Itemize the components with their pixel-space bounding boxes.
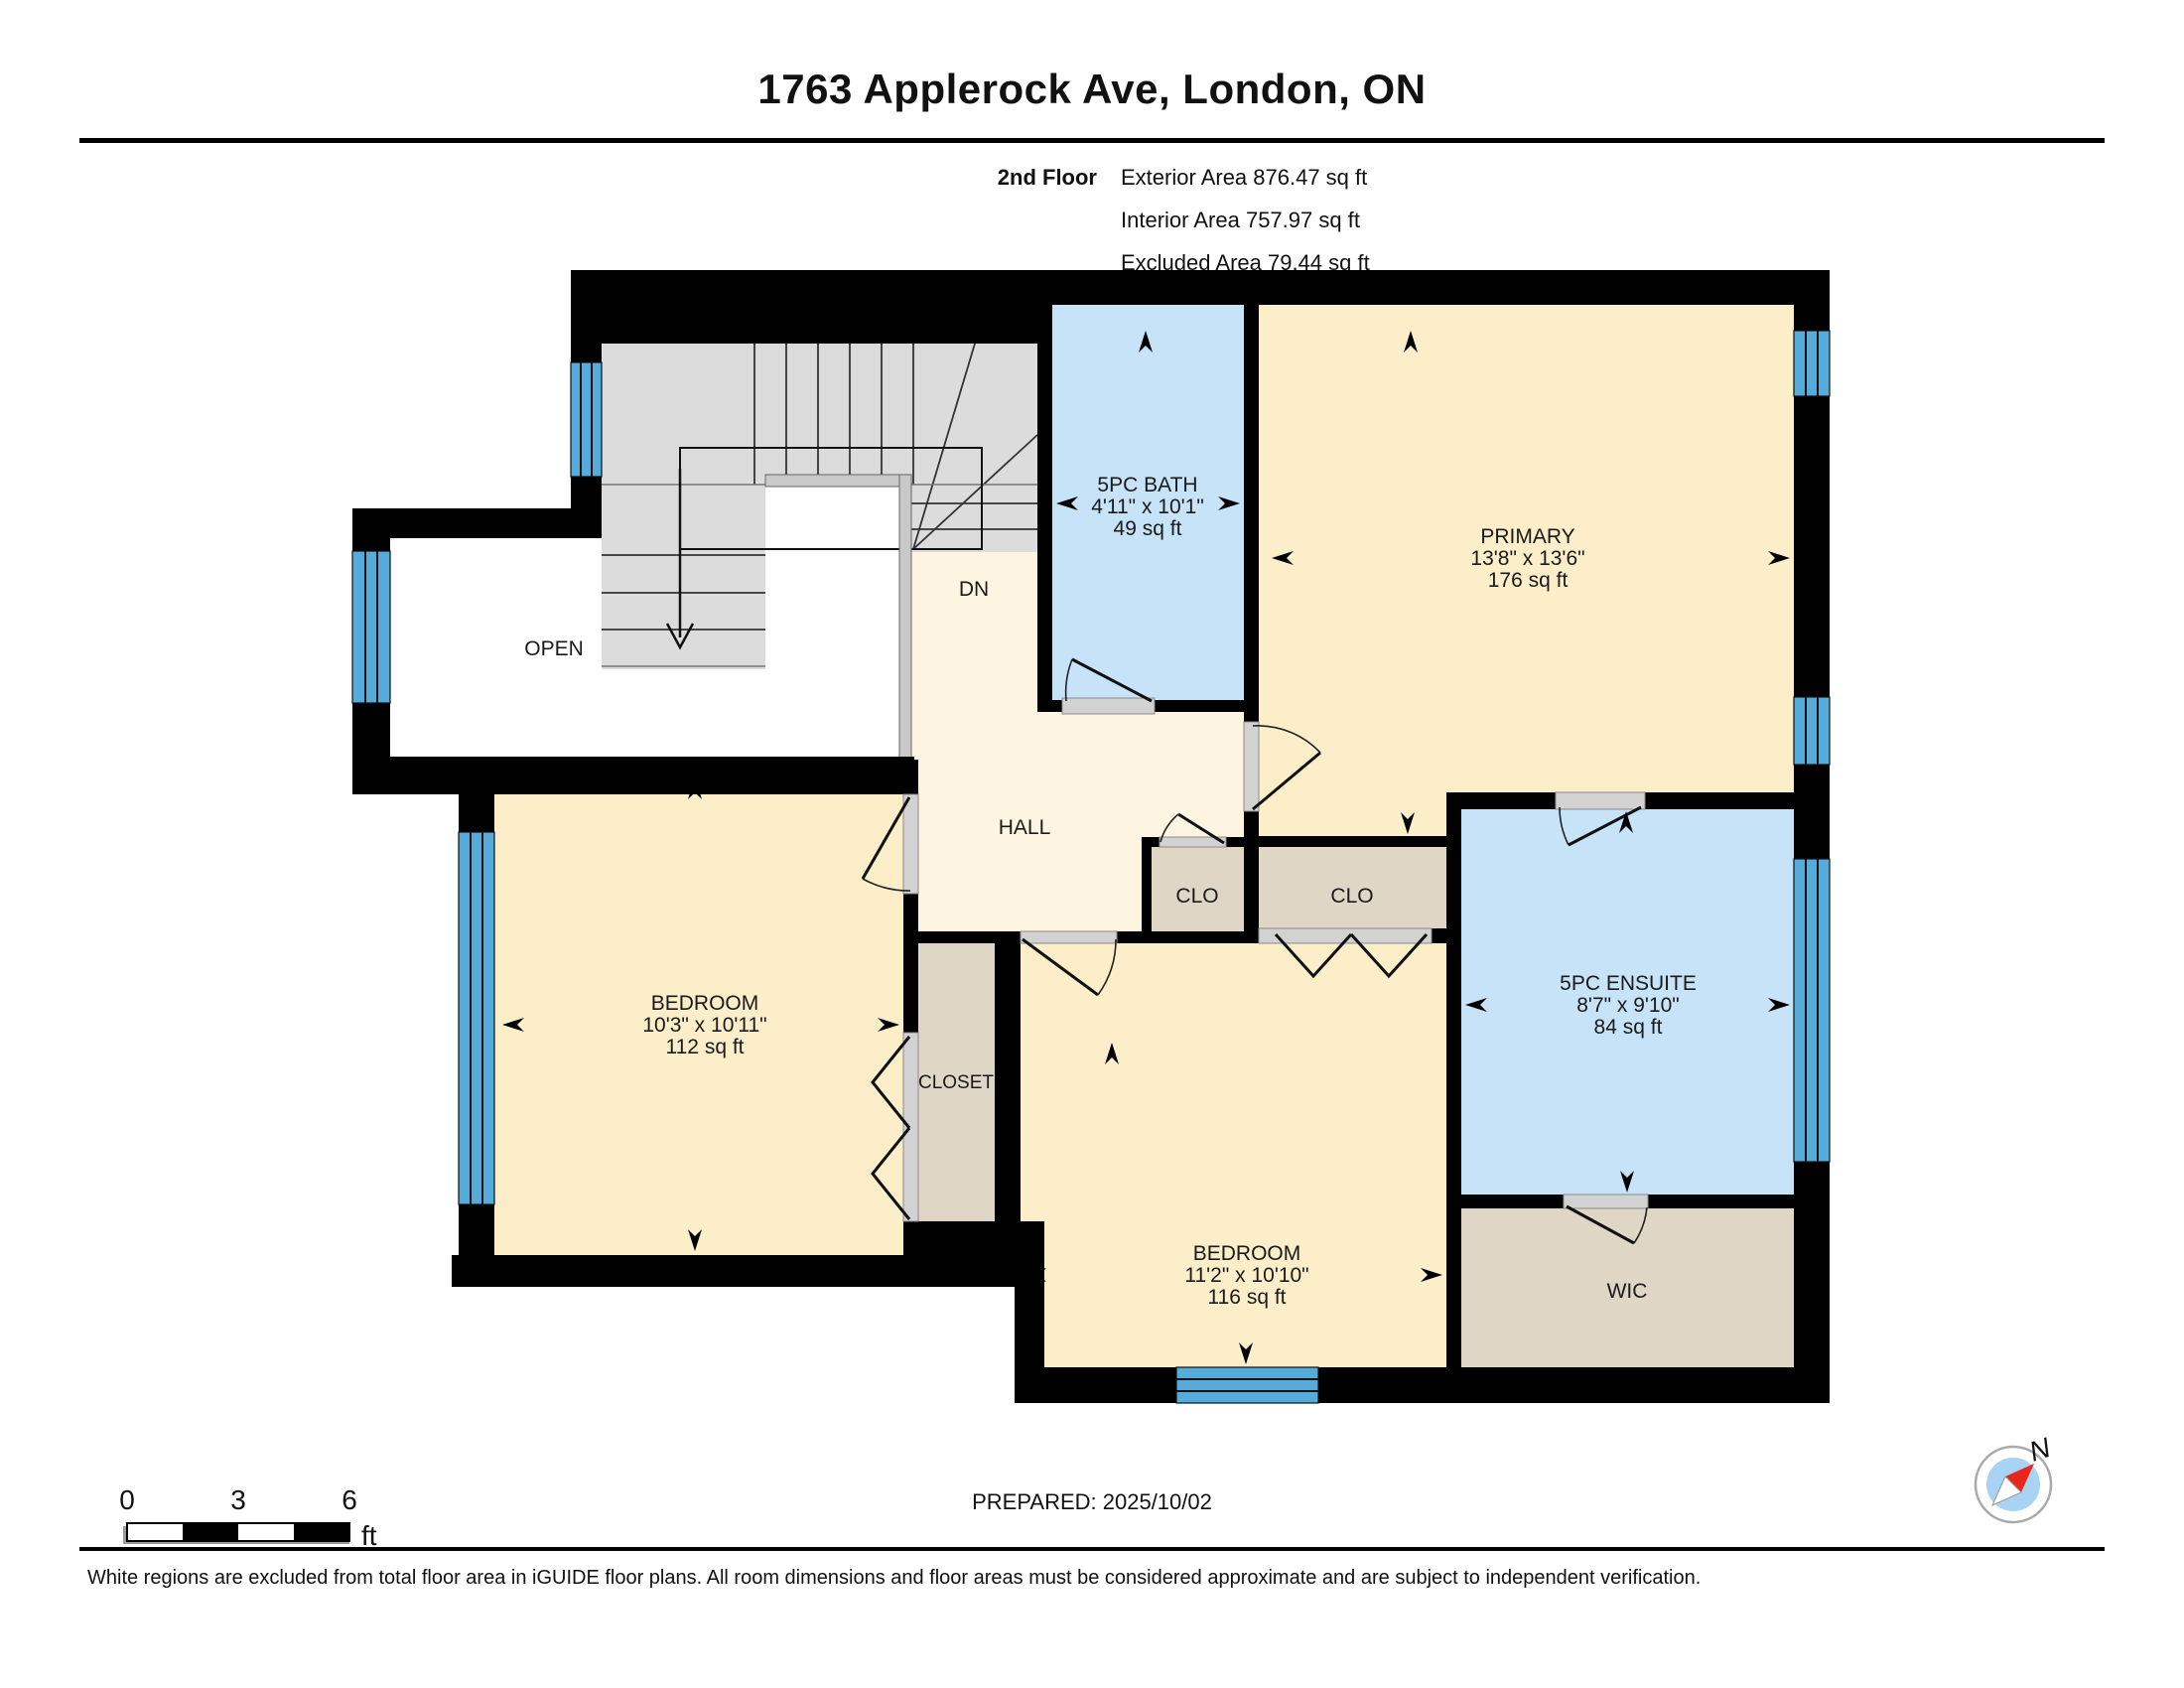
window-stairwell: [571, 362, 602, 477]
window-primary-1: [1794, 331, 1830, 396]
wall-segment: [1045, 270, 1830, 305]
wall-segment: [995, 943, 1021, 1221]
wall-segment: [1152, 837, 1160, 847]
clo1-label: CLO: [1175, 885, 1218, 908]
prepared-date: PREPARED: 2025/10/02: [0, 1489, 2184, 1515]
wall-segment: [903, 931, 1021, 943]
footer-rule: [79, 1547, 2105, 1551]
ensuite-label: 5PC ENSUITE: [1560, 972, 1697, 995]
bedroom1-dims: 10'3" x 10'11": [642, 1014, 766, 1037]
door-opening-bedroom1: [903, 794, 918, 894]
wall-segment: [1226, 837, 1244, 847]
door-opening-bedroom2: [1021, 931, 1117, 943]
door-opening-ensuite: [1556, 792, 1645, 809]
bath-dims: 4'11" x 10'1": [1091, 495, 1204, 518]
knee-wall: [899, 475, 911, 760]
bedroom1-area: 112 sq ft: [666, 1036, 745, 1058]
window-bedroom1: [459, 832, 494, 1204]
stairs-upper-floor: [602, 344, 1037, 485]
closet-label: CLOSET: [918, 1072, 994, 1093]
open-void-floor: [765, 487, 911, 546]
wall-segment: [1142, 837, 1152, 943]
window-ensuite: [1794, 859, 1830, 1162]
wall-segment: [903, 1221, 1044, 1287]
scale-bar-segment: [294, 1523, 349, 1541]
clo2-label: CLO: [1330, 885, 1373, 908]
wall-segment: [1037, 305, 1052, 712]
wall-segment: [1244, 837, 1259, 943]
window-open-area: [352, 551, 390, 703]
bedroom2-dims: 11'2" x 10'10": [1184, 1264, 1308, 1287]
scale-bar-segment: [183, 1523, 238, 1541]
disclaimer-text: White regions are excluded from total fl…: [87, 1567, 1701, 1590]
bath-label: 5PC BATH: [1097, 474, 1197, 496]
door-opening-bath: [1062, 698, 1155, 714]
stairs-dn-label: DN: [959, 578, 989, 601]
window-primary-2: [1794, 697, 1830, 765]
bedroom1-label: BEDROOM: [651, 992, 759, 1015]
hall-label: HALL: [999, 816, 1051, 839]
primary-area: 176 sq ft: [1488, 569, 1569, 592]
window-bedroom2: [1176, 1367, 1318, 1403]
wall-segment: [1794, 270, 1830, 1403]
wic-label: WIC: [1607, 1280, 1648, 1303]
bedroom2-label: BEDROOM: [1193, 1242, 1301, 1265]
door-opening-closet-bifold: [903, 1033, 918, 1221]
wall-segment: [1432, 928, 1446, 943]
open-label: OPEN: [524, 637, 584, 660]
bedroom2-area: 116 sq ft: [1208, 1286, 1287, 1309]
bath-area: 49 sq ft: [1114, 517, 1182, 540]
ensuite-dims: 8'7" x 9'10": [1576, 994, 1680, 1017]
ensuite-area: 84 sq ft: [1594, 1016, 1663, 1039]
wall-segment: [1015, 1367, 1830, 1403]
primary-label: PRIMARY: [1480, 525, 1574, 548]
wall-segment: [1259, 836, 1446, 847]
wall-segment: [571, 270, 1045, 344]
primary-dims: 13'8" x 13'6": [1470, 547, 1584, 570]
wall-segment: [1117, 931, 1259, 943]
knee-wall: [765, 475, 911, 487]
door-opening-primary: [1244, 722, 1259, 811]
wall-segment: [352, 508, 602, 538]
wall-segment: [1446, 792, 1461, 1367]
door-opening-wic: [1564, 1195, 1648, 1208]
floorplan-drawing: OPEN DN 5PC BATH 4'11" x 10'1" 49 sq ft …: [0, 0, 2184, 1688]
wall-segment: [352, 757, 914, 794]
floorplan-page: 1763 Applerock Ave, London, ON 2nd Floor…: [0, 0, 2184, 1688]
